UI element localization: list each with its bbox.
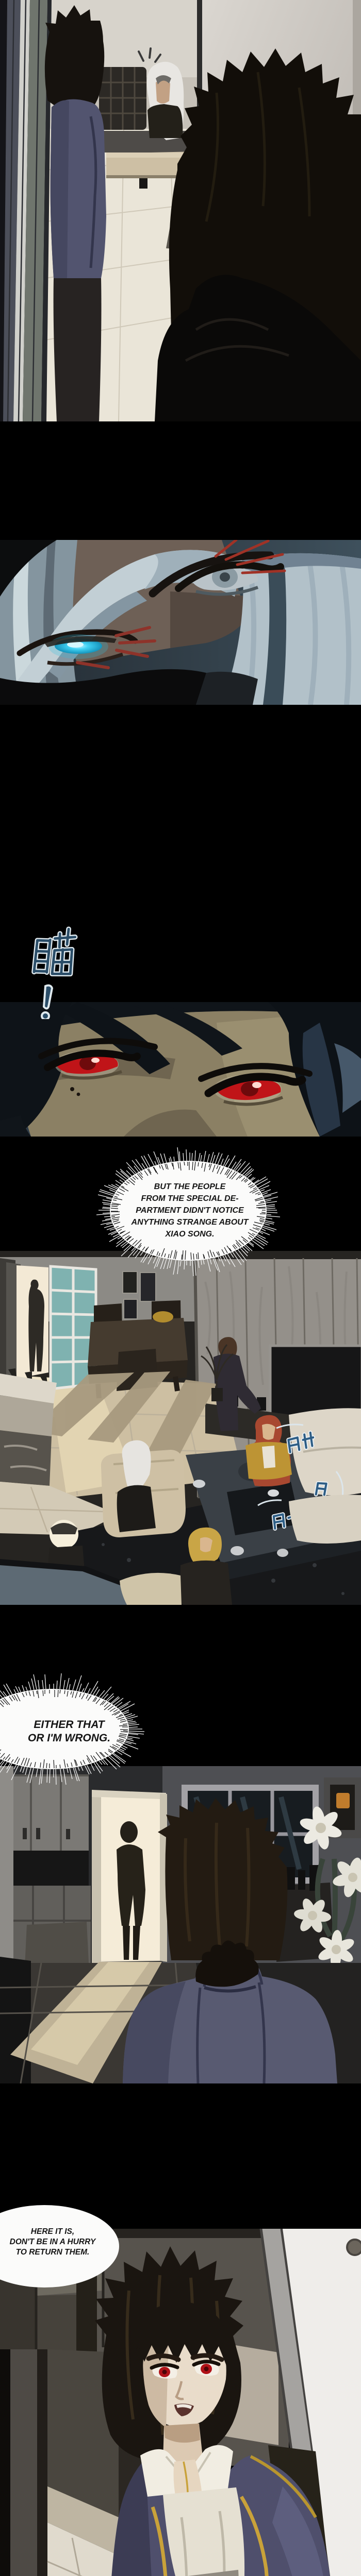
svg-text:FROM THE SPECIAL DE-: FROM THE SPECIAL DE- xyxy=(141,1194,238,1203)
svg-text:TO RETURN THEM.: TO RETURN THEM. xyxy=(16,2248,90,2257)
svg-text:OR I'M WRONG.: OR I'M WRONG. xyxy=(28,1732,110,1744)
svg-text:EITHER THAT: EITHER THAT xyxy=(34,1719,105,1731)
svg-text:XIAO SONG.: XIAO SONG. xyxy=(165,1230,214,1239)
svg-text:PARTMENT DIDN'T NOTICE: PARTMENT DIDN'T NOTICE xyxy=(136,1206,244,1215)
svg-text:ANYTHING STRANGE ABOUT: ANYTHING STRANGE ABOUT xyxy=(131,1218,249,1227)
svg-text:DON'T BE IN A HURRY: DON'T BE IN A HURRY xyxy=(10,2238,96,2246)
svg-text:HERE IT IS,: HERE IT IS, xyxy=(31,2227,74,2236)
svg-text:BUT THE PEOPLE: BUT THE PEOPLE xyxy=(154,1182,226,1191)
